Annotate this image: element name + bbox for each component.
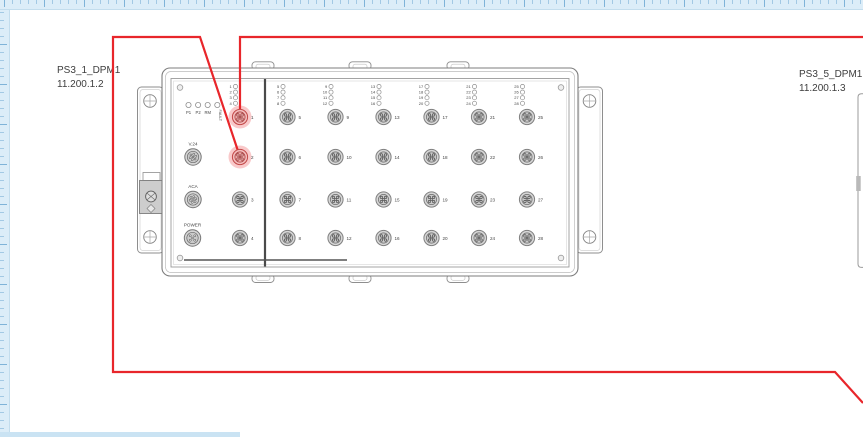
svg-text:3: 3 — [251, 197, 254, 202]
svg-text:15: 15 — [395, 197, 401, 202]
svg-text:13: 13 — [371, 84, 376, 89]
svg-text:20: 20 — [443, 236, 449, 241]
svg-text:28: 28 — [514, 101, 519, 106]
svg-text:9: 9 — [347, 115, 350, 120]
horizontal-ruler — [0, 0, 863, 10]
svg-text:1: 1 — [251, 115, 254, 120]
svg-text:12: 12 — [323, 101, 328, 106]
svg-text:14: 14 — [371, 90, 376, 95]
svg-text:16: 16 — [371, 101, 376, 106]
svg-text:21: 21 — [490, 115, 496, 120]
svg-text:5: 5 — [299, 115, 302, 120]
svg-text:12: 12 — [347, 236, 353, 241]
vertical-ruler — [0, 0, 10, 437]
svg-text:P2: P2 — [196, 110, 202, 115]
housing-latch — [856, 176, 861, 191]
connector-power[interactable]: POWER — [184, 223, 202, 247]
svg-text:4: 4 — [251, 236, 254, 241]
faceplate — [171, 79, 569, 268]
svg-text:25: 25 — [538, 115, 544, 120]
svg-text:24: 24 — [490, 236, 496, 241]
svg-text:18: 18 — [443, 155, 449, 160]
svg-text:27: 27 — [514, 95, 519, 100]
svg-text:25: 25 — [514, 84, 519, 89]
svg-text:20: 20 — [419, 101, 424, 106]
svg-text:V.24: V.24 — [188, 142, 197, 147]
svg-text:10: 10 — [347, 155, 353, 160]
svg-text:RM: RM — [204, 110, 211, 115]
partial-device-right[interactable] — [856, 94, 863, 268]
svg-text:P1: P1 — [186, 110, 192, 115]
svg-text:8: 8 — [299, 236, 302, 241]
svg-text:19: 19 — [419, 95, 424, 100]
svg-text:22: 22 — [490, 155, 496, 160]
svg-text:27: 27 — [538, 197, 544, 202]
svg-text:7: 7 — [299, 197, 302, 202]
svg-text:14: 14 — [395, 155, 401, 160]
svg-text:22: 22 — [466, 90, 471, 95]
svg-text:24: 24 — [466, 101, 471, 106]
svg-text:15: 15 — [371, 95, 376, 100]
svg-text:13: 13 — [395, 115, 401, 120]
svg-text:26: 26 — [538, 155, 544, 160]
svg-text:26: 26 — [514, 90, 519, 95]
svg-text:11: 11 — [347, 197, 352, 202]
svg-text:ACA: ACA — [188, 184, 198, 189]
diagram-canvas[interactable]: PS3_1_DPM1 11.200.1.2 PS3_5_DPM1 11.200.… — [0, 0, 863, 437]
svg-text:17: 17 — [443, 115, 449, 120]
svg-text:10: 10 — [323, 90, 328, 95]
svg-text:23: 23 — [466, 95, 471, 100]
svg-text:21: 21 — [466, 84, 471, 89]
svg-text:19: 19 — [443, 197, 449, 202]
svg-text:16: 16 — [395, 236, 401, 241]
svg-text:POWER: POWER — [184, 223, 202, 228]
scrollbar-fragment[interactable] — [0, 432, 240, 437]
svg-text:28: 28 — [538, 236, 544, 241]
svg-text:6: 6 — [299, 155, 302, 160]
mounting-ear-left — [138, 87, 164, 253]
diagram-scene: 1234567891011121314151617181920212223242… — [0, 0, 863, 437]
svg-text:FAULT: FAULT — [218, 110, 222, 122]
svg-text:17: 17 — [419, 84, 424, 89]
svg-text:23: 23 — [490, 197, 496, 202]
svg-text:2: 2 — [251, 155, 254, 160]
svg-text:18: 18 — [419, 90, 424, 95]
mounting-ear-right — [577, 87, 603, 253]
